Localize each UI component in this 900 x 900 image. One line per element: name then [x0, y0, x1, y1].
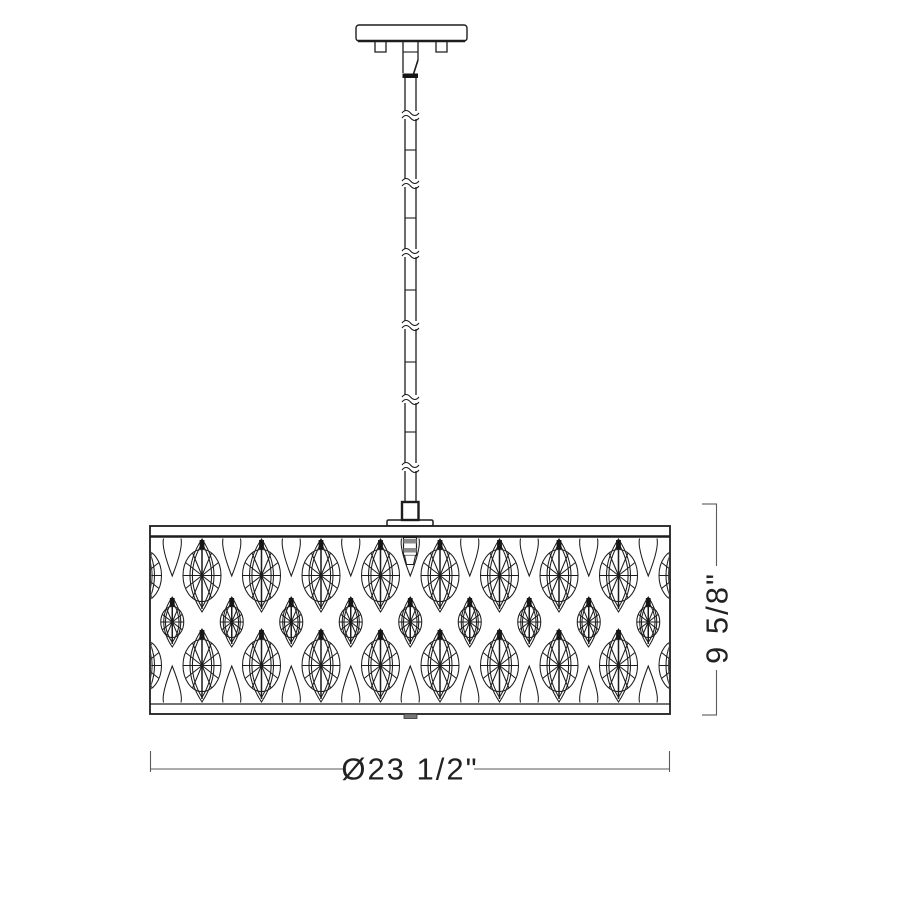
leaf-pin [229, 598, 234, 607]
rod-break-squiggle [402, 321, 419, 326]
leaf-pin [616, 630, 621, 639]
leaf-pin [200, 540, 205, 549]
dimension-diameter: Ø23 1/2" [151, 751, 670, 787]
hang-straight-connector [403, 42, 419, 78]
leaf-pin [557, 630, 562, 639]
leaf-pin [586, 598, 591, 607]
leaf-pin [319, 630, 324, 639]
rod-break-squiggle [402, 179, 419, 184]
rod-segment [405, 403, 416, 463]
leaf-pin [646, 598, 651, 607]
leaf-pin [259, 630, 264, 639]
leaf-pin [378, 540, 383, 549]
center-stem-stub [404, 538, 417, 565]
connector-collar [403, 74, 419, 79]
leaf-inner-outline [668, 544, 687, 608]
rod-break-squiggle [402, 463, 419, 468]
leaf-inner-outline [668, 634, 687, 698]
leaf-pin [497, 630, 502, 639]
leaf-pin [140, 630, 145, 639]
leaf-pin [557, 540, 562, 549]
leaf-pin [200, 630, 205, 639]
canopy-plate [356, 25, 467, 41]
canopy-screw-left [375, 42, 386, 52]
leaf-pin [438, 540, 443, 549]
rod-segment [405, 119, 416, 179]
stub-thread-1 [404, 539, 417, 544]
canopy-screw-right [436, 42, 447, 52]
product-dimension-diagram: 9 5/8" Ø23 1/2" [0, 0, 900, 900]
stub-thread-2 [404, 548, 417, 553]
leaf-pin [289, 598, 294, 607]
top-cusp-arch [699, 539, 717, 577]
hanging-rod [402, 78, 419, 502]
leaf-pin [676, 630, 681, 639]
leaf-pin [348, 598, 353, 607]
leaf-pin [438, 630, 443, 639]
leaf-pin [676, 540, 681, 549]
rod-break-squiggle [402, 395, 419, 400]
height-label: 9 5/8" [700, 572, 735, 664]
leaf-pin [527, 598, 532, 607]
rod-break-squiggle [402, 111, 419, 116]
diameter-label: Ø23 1/2" [341, 752, 478, 787]
mount-block [402, 502, 419, 520]
rod-break-squiggle [402, 249, 419, 254]
leaf-pin [259, 540, 264, 549]
leaf-pin [378, 630, 383, 639]
leaf-pin [408, 598, 413, 607]
leaf-pin [140, 540, 145, 549]
bottom-finial [404, 714, 417, 719]
diagram-svg: 9 5/8" Ø23 1/2" [0, 0, 900, 900]
rod-segment [405, 471, 416, 502]
connector-taper [414, 60, 419, 74]
drum-mount [387, 502, 433, 526]
dimension-height: 9 5/8" [700, 504, 735, 715]
ceiling-canopy [356, 25, 467, 52]
leaf-pin [170, 598, 175, 607]
leaf-pin [467, 598, 472, 607]
stub-tip [405, 556, 416, 565]
rod-segment [405, 78, 416, 111]
drum-shade [124, 526, 717, 719]
rod-segment [405, 257, 416, 321]
leaf-pin [319, 540, 324, 549]
bottom-cusp-arch [699, 666, 717, 703]
leaf-pin [616, 540, 621, 549]
leaf-pin [497, 540, 502, 549]
